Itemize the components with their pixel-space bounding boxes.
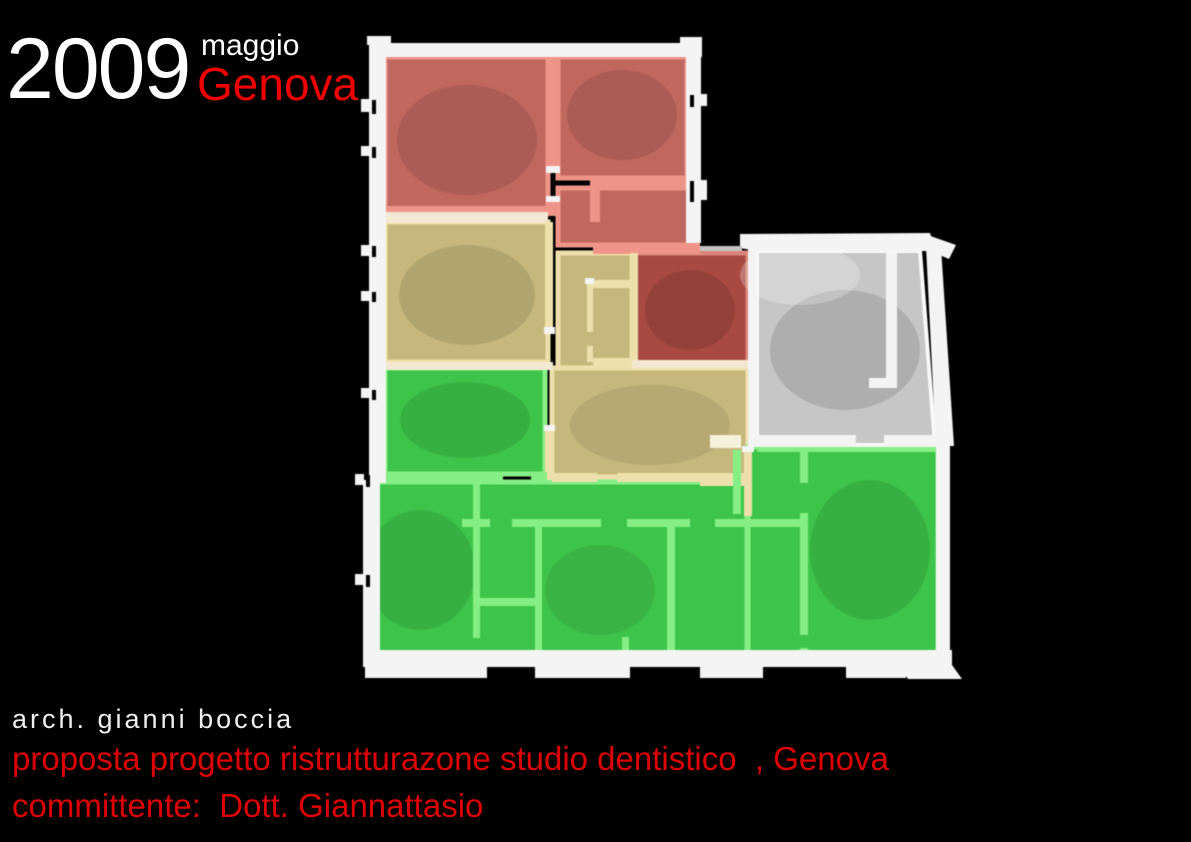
left-wall-lower	[363, 480, 380, 660]
hall-shelf	[710, 435, 741, 448]
gray-room-partition	[886, 252, 897, 388]
tan-corridor	[558, 253, 632, 373]
top-wall	[372, 43, 702, 57]
gray-room-top-wall	[740, 233, 936, 251]
presentation-board: 2009 maggio Genova	[0, 0, 1191, 842]
gray-room-left-wall	[748, 247, 757, 447]
client-line: committente: Dott. Giannattasio	[12, 787, 483, 825]
bottom-wall	[363, 650, 952, 667]
window-glazing	[700, 246, 742, 251]
right-wall-lower	[936, 445, 950, 662]
left-wall-upper	[369, 43, 386, 483]
right-wall-red-block	[686, 43, 701, 243]
room-red-small	[558, 188, 690, 245]
architect-credit: arch. gianni boccia	[12, 704, 294, 735]
project-title: proposta progetto ristrutturazone studio…	[12, 740, 889, 778]
